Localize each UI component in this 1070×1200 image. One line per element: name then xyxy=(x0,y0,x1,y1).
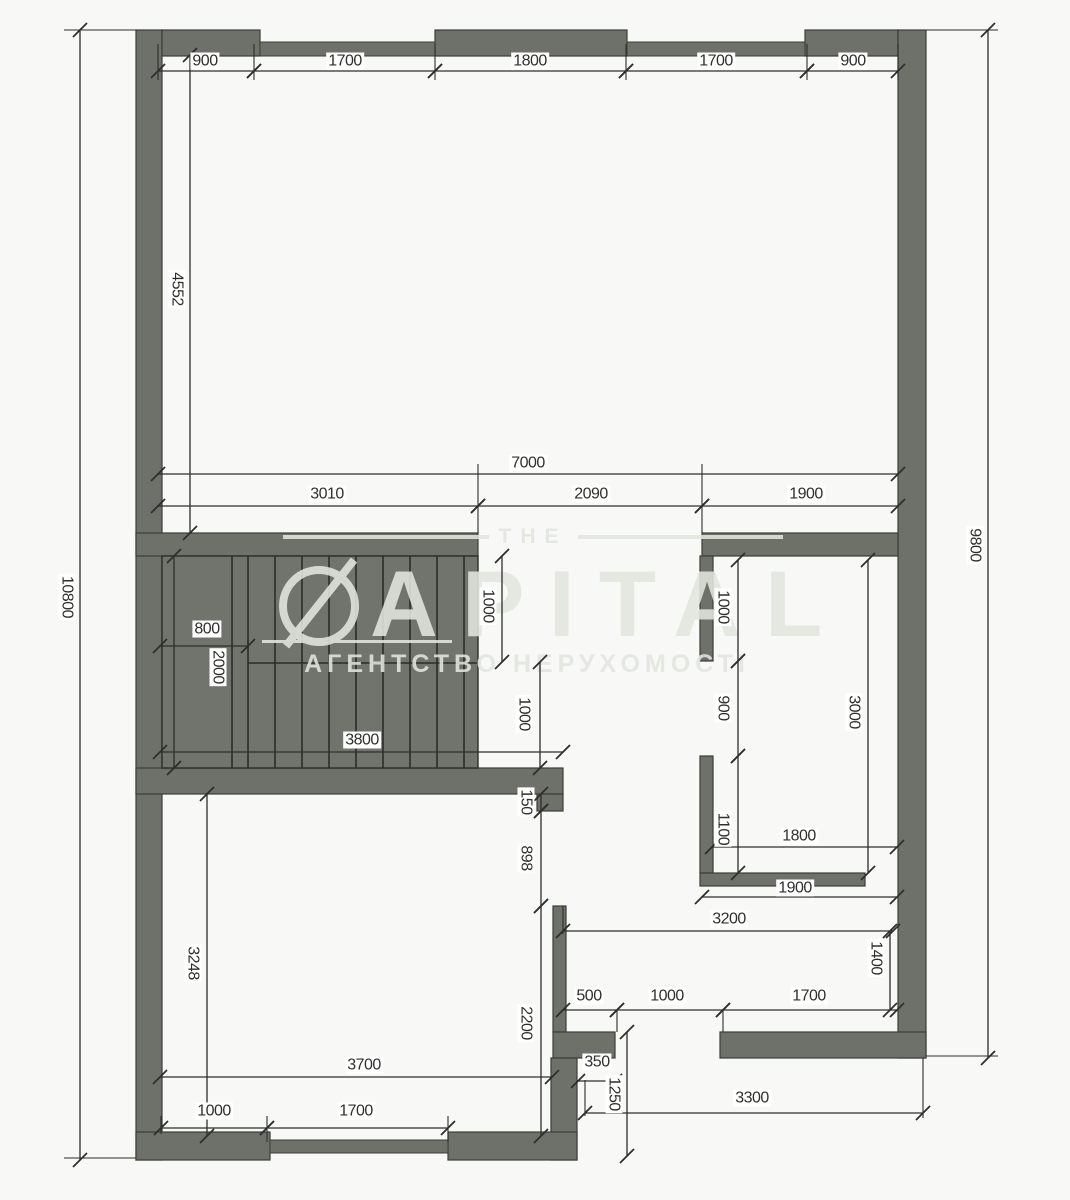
dimension-label: 3000 xyxy=(846,693,863,731)
dimension-label: 800 xyxy=(192,621,221,638)
dimension-label: 1100 xyxy=(715,811,732,847)
dimension-label: 1700 xyxy=(326,53,364,70)
dimension-label: 3300 xyxy=(733,1090,771,1107)
dimension-label: 1000 xyxy=(648,988,686,1005)
dimension-label: 1900 xyxy=(776,880,814,897)
dimension-label: 1000 xyxy=(516,695,533,733)
dimension-label: 3700 xyxy=(345,1057,383,1074)
dimension-label: 1000 xyxy=(715,588,732,626)
dimension-label: 1800 xyxy=(511,53,549,70)
dimension-label: 900 xyxy=(190,53,219,70)
dimension-label: 1000 xyxy=(480,587,497,625)
dimension-label: 3200 xyxy=(710,911,748,928)
dimension-label: 2200 xyxy=(518,1004,535,1042)
dimension-label: 4552 xyxy=(169,270,186,308)
dimension-label: 1900 xyxy=(787,486,825,503)
dimension-label: 1700 xyxy=(697,53,735,70)
dimension-label: 2000 xyxy=(210,648,227,686)
dimension-label: 900 xyxy=(838,53,867,70)
dimension-label: 3248 xyxy=(185,944,202,982)
dimension-label: 10800 xyxy=(59,574,76,620)
dimension-label: 3010 xyxy=(308,486,346,503)
dimension-label: 900 xyxy=(715,693,732,722)
dimension-label: 1700 xyxy=(790,988,828,1005)
dimension-label: 9800 xyxy=(967,526,984,564)
dimension-label: 7000 xyxy=(509,455,547,472)
dimension-label: 1700 xyxy=(337,1103,375,1120)
dimension-label: 1250 xyxy=(606,1075,623,1113)
dimension-label: 350 xyxy=(582,1054,611,1071)
dimension-label: 2090 xyxy=(572,486,610,503)
dimension-label: 898 xyxy=(518,843,535,872)
dimension-label: 1000 xyxy=(195,1103,233,1120)
dimension-label: 3800 xyxy=(343,732,381,749)
floor-plan-canvas: THE APITAL АГЕНТСТВО НЕРУХОМОСТІ 9001700… xyxy=(0,0,1070,1200)
dimension-label: 150 xyxy=(518,787,535,816)
dimension-label: 500 xyxy=(574,988,603,1005)
dimension-label: 1800 xyxy=(780,828,818,845)
dimension-labels-layer: 9001700180017009001080045529800700030102… xyxy=(0,0,1070,1200)
dimension-label: 1400 xyxy=(868,939,885,977)
